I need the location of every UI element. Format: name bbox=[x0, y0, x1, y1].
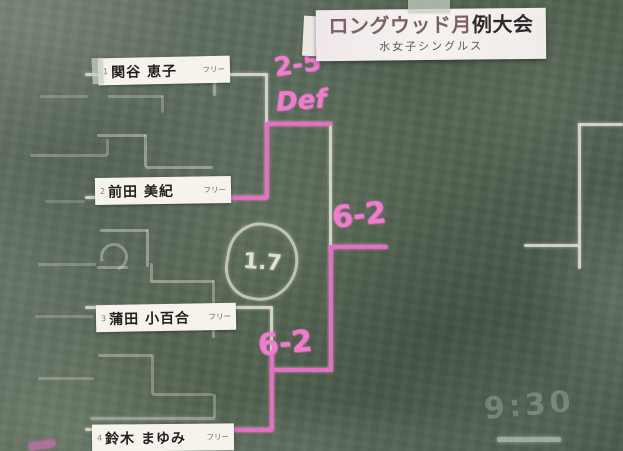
player-seed: 1 bbox=[103, 67, 108, 76]
winner-path-semifinal-up bbox=[329, 245, 333, 371]
player-seed: 2 bbox=[100, 187, 105, 196]
erased-line-remnant bbox=[38, 377, 94, 380]
player-label-2: 2 前田 美紀 フリー bbox=[95, 176, 231, 205]
player-seed: 4 bbox=[97, 434, 102, 443]
pink-chalk-smudge bbox=[28, 439, 57, 451]
player-name: 蒲田 小百合 bbox=[109, 307, 190, 328]
player-label-1: 1 関谷 恵子 フリー bbox=[98, 56, 231, 86]
erased-line-remnant bbox=[90, 417, 215, 420]
tape-piece bbox=[91, 58, 103, 85]
winner-path-match1-out bbox=[266, 122, 332, 126]
bracket-line-right-top bbox=[578, 123, 623, 126]
erased-line-remnant bbox=[38, 263, 96, 266]
player-seed: 3 bbox=[101, 314, 106, 323]
erased-line-remnant bbox=[35, 315, 93, 318]
bracket-winner-line-right bbox=[524, 244, 580, 247]
erased-line-remnant bbox=[98, 354, 152, 357]
player-status: フリー bbox=[196, 64, 225, 76]
chalk-bar-remnant bbox=[497, 437, 561, 442]
winner-path-match1-up bbox=[265, 122, 269, 198]
ghost-time-text: 9:30 bbox=[483, 384, 576, 427]
erased-line-remnant bbox=[161, 95, 164, 113]
erased-line-remnant bbox=[150, 280, 214, 283]
erased-line-remnant bbox=[146, 229, 149, 267]
sign-title-part2: 例大会 bbox=[472, 12, 534, 37]
bracket-join-right bbox=[578, 123, 581, 269]
sign-title-part1: ロングウッド月 bbox=[328, 13, 472, 39]
erased-line-remnant bbox=[40, 95, 88, 98]
winner-path-match2-up bbox=[270, 352, 274, 430]
erased-line-remnant bbox=[150, 263, 153, 281]
chalk-scribble bbox=[95, 238, 132, 275]
date-circle-annotation: 1.7 bbox=[220, 217, 304, 306]
score-semifinal: 6-2 bbox=[330, 195, 388, 235]
tournament-sign: ロングウッド月例大会 水女子シングルス bbox=[316, 8, 547, 61]
player-label-3: 3 蒲田 小百合 フリー bbox=[96, 303, 236, 332]
erased-line-remnant bbox=[100, 229, 148, 232]
erased-line-remnant bbox=[30, 154, 108, 157]
player-status: フリー bbox=[202, 311, 231, 322]
sign-subtitle: 水女子シングルス bbox=[316, 37, 546, 55]
score-match2: 6-2 bbox=[257, 324, 314, 364]
player-status: フリー bbox=[200, 431, 229, 442]
player-label-4: 4 鈴木 まゆみ フリー bbox=[92, 423, 234, 451]
sign-title: ロングウッド月例大会 bbox=[316, 13, 546, 37]
date-text: 1.7 bbox=[242, 248, 283, 276]
erased-line-remnant bbox=[151, 354, 154, 394]
winner-path-match2-out bbox=[271, 368, 333, 372]
player-name: 鈴木 まゆみ bbox=[105, 427, 186, 448]
player-status: フリー bbox=[197, 184, 226, 195]
erased-line-remnant bbox=[144, 134, 147, 167]
erased-line-remnant bbox=[213, 394, 216, 418]
erased-line-remnant bbox=[45, 200, 85, 203]
score-match1-note: Def bbox=[275, 84, 328, 117]
player-name: 関谷 恵子 bbox=[111, 60, 177, 81]
erased-line-remnant bbox=[106, 139, 109, 155]
winner-path-semifinal-out bbox=[330, 245, 388, 249]
erased-line-remnant bbox=[152, 393, 213, 396]
tape-piece bbox=[408, 0, 450, 13]
erased-line-remnant bbox=[97, 134, 146, 137]
erased-line-remnant bbox=[108, 95, 163, 98]
chalkboard: 2-5 Def 6-2 6-2 1.7 9:30 1 関谷 恵子 フリー 2 前… bbox=[0, 0, 623, 451]
player-name: 前田 美紀 bbox=[108, 180, 174, 201]
erased-line-remnant bbox=[145, 166, 213, 169]
